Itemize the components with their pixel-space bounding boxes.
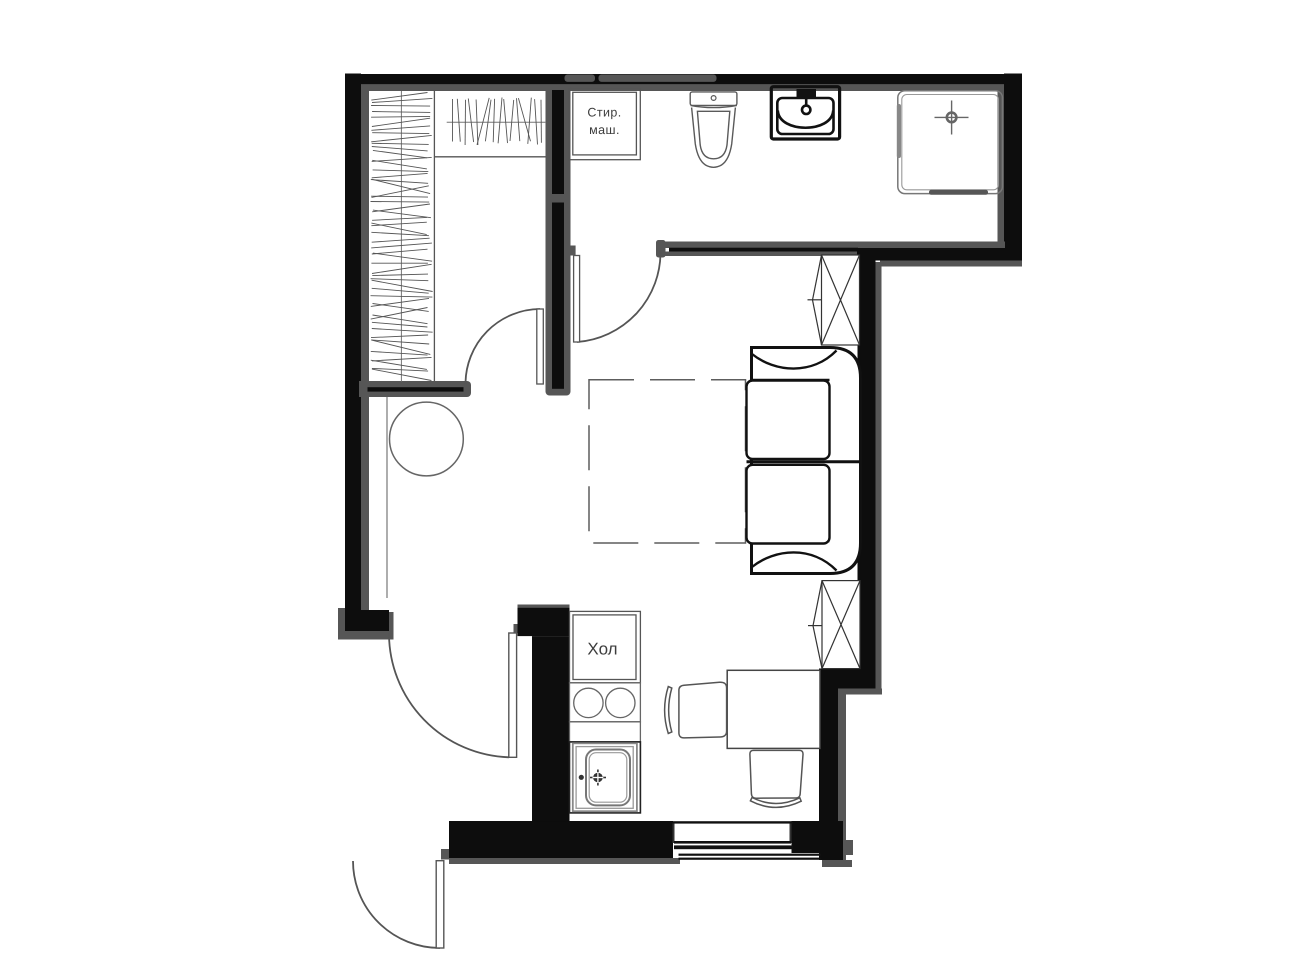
svg-text:маш.: маш. <box>589 123 620 137</box>
svg-text:Хол: Хол <box>587 640 617 659</box>
svg-text:Стир.: Стир. <box>587 106 621 120</box>
